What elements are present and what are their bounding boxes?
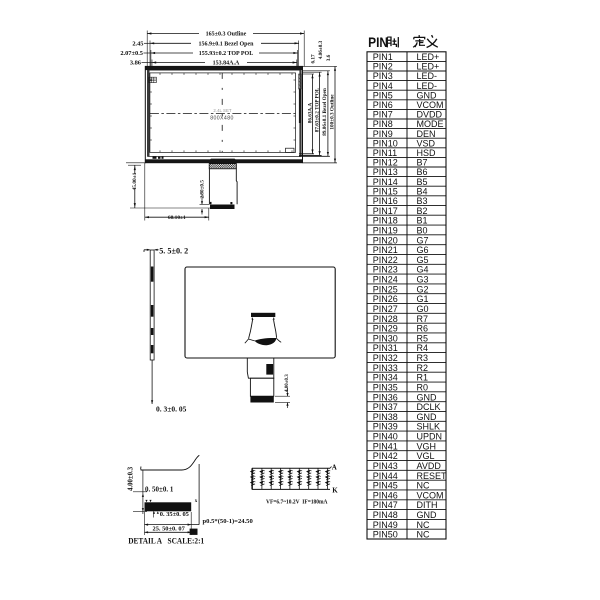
svg-text:PIN50: PIN50 [373,530,398,540]
svg-text:R4: R4 [417,343,429,353]
svg-text:PIN24: PIN24 [373,275,398,285]
svg-text:DVDD: DVDD [417,110,443,120]
svg-text:153.84A.A: 153.84A.A [213,61,240,67]
svg-text:PIN5: PIN5 [373,90,393,100]
svg-text:G2: G2 [417,284,429,294]
svg-text:B1: B1 [417,216,428,226]
svg-text:PIN6: PIN6 [373,100,393,110]
svg-text:R1: R1 [417,373,429,383]
svg-text:B2: B2 [417,206,428,216]
svg-text:PIN43: PIN43 [373,461,398,471]
svg-text:PIN39: PIN39 [373,422,398,432]
svg-text:PIN2: PIN2 [373,62,393,72]
svg-text:PIN31: PIN31 [373,343,398,353]
svg-text:G4: G4 [417,265,429,275]
svg-text:G7: G7 [417,235,429,245]
svg-text:GND: GND [417,392,438,402]
svg-text:R2: R2 [417,363,429,373]
svg-text:PIN30: PIN30 [373,333,398,343]
svg-text:G5: G5 [417,255,429,265]
svg-text:B6: B6 [417,167,428,177]
svg-text:45.00±1: 45.00±1 [132,172,138,190]
svg-text:165±0.3 Outline: 165±0.3 Outline [206,32,247,38]
svg-text:G6: G6 [417,245,429,255]
svg-text:GND: GND [417,510,438,520]
svg-text:PIN40: PIN40 [373,432,398,442]
svg-text:4.00±0.3: 4.00±0.3 [128,466,135,491]
svg-text:B7: B7 [417,158,428,168]
svg-text:2.45: 2.45 [132,40,143,47]
svg-text:3.86: 3.86 [130,60,142,67]
svg-text:PIN45: PIN45 [373,481,398,491]
svg-text:PIN44: PIN44 [373,471,398,481]
svg-text:R3: R3 [417,353,429,363]
svg-text:0. 35±0. 05: 0. 35±0. 05 [160,511,189,518]
svg-text:LED+: LED+ [417,62,440,72]
svg-text:PIN46: PIN46 [373,490,398,500]
svg-text:PIN3: PIN3 [373,71,393,81]
svg-text:PIN22: PIN22 [373,255,398,265]
svg-text:PIN47: PIN47 [373,500,398,510]
svg-text:PIN28: PIN28 [373,314,398,324]
svg-text:DITH: DITH [417,500,438,510]
svg-text:PIN21: PIN21 [373,245,398,255]
svg-text:LED-: LED- [417,81,438,91]
svg-text:800X480: 800X480 [210,116,234,122]
svg-text:PIN29: PIN29 [373,324,398,334]
svg-text:PIN13: PIN13 [373,167,398,177]
svg-text:AVDD: AVDD [417,461,442,471]
svg-text:6.17: 6.17 [311,54,317,63]
svg-text:PIN27: PIN27 [373,304,398,314]
svg-text:LED-: LED- [417,71,438,81]
svg-text:VGH: VGH [417,441,437,451]
svg-text:PIN11: PIN11 [373,148,397,158]
svg-text:VSD: VSD [417,138,436,148]
svg-text:PIN4: PIN4 [373,81,393,91]
svg-text:PIN49: PIN49 [373,520,398,530]
svg-text:PIN48: PIN48 [373,510,398,520]
svg-text:VF=6.7~10.2V IF=180mA: VF=6.7~10.2V IF=180mA [266,498,328,505]
svg-text:PIN18: PIN18 [373,216,398,226]
svg-text:PIN32: PIN32 [373,353,398,363]
svg-text:PIN38: PIN38 [373,412,398,422]
svg-text:PIN15: PIN15 [373,186,398,196]
svg-text:NC: NC [417,520,430,530]
svg-text:DETAIL A SCALE:2:1: DETAIL A SCALE:2:1 [128,537,204,546]
svg-text:0. 3±0. 05: 0. 3±0. 05 [156,405,187,414]
svg-text:89.06±0.1 Bezel Open: 89.06±0.1 Bezel Open [322,88,328,136]
svg-text:25. 50±0. 07: 25. 50±0. 07 [153,526,186,533]
svg-text:DEN: DEN [417,129,436,139]
svg-text:68.10±1: 68.10±1 [168,215,186,221]
svg-text:156.9±0.1 Bezel Open: 156.9±0.1 Bezel Open [199,41,255,47]
svg-text:R7: R7 [417,314,429,324]
svg-text:PIN17: PIN17 [373,206,398,216]
svg-text:PIN23: PIN23 [373,265,398,275]
svg-text:PIN19: PIN19 [373,225,398,235]
svg-text:VCOM: VCOM [417,490,444,500]
svg-text:R5: R5 [417,333,429,343]
svg-text:PIN14: PIN14 [373,177,398,187]
svg-text:86.63A.A: 86.63A.A [307,103,313,124]
svg-text:A: A [332,463,337,471]
svg-text:G3: G3 [417,275,429,285]
svg-text:GND: GND [417,90,438,100]
svg-text:PIN37: PIN37 [373,402,398,412]
svg-text:B4: B4 [417,186,428,196]
svg-text:HSD: HSD [417,148,437,158]
svg-text:RESET: RESET [417,471,448,481]
svg-text:UPDN: UPDN [417,432,443,442]
svg-text:155.93±0.2 TOP POL: 155.93±0.2 TOP POL [199,51,253,57]
svg-text:K: K [332,487,338,495]
svg-text:G1: G1 [417,294,429,304]
svg-text:PIN: PIN [368,34,388,50]
svg-text:PIN25: PIN25 [373,284,398,294]
svg-text:PIN16: PIN16 [373,196,398,206]
svg-text:NC: NC [417,481,430,491]
svg-text:VGL: VGL [417,451,435,461]
svg-text:5. 5±0. 2: 5. 5±0. 2 [159,246,188,255]
svg-text:3.6: 3.6 [326,54,332,61]
svg-text:PIN8: PIN8 [373,119,393,129]
svg-text:2.07±0.5: 2.07±0.5 [120,50,143,57]
svg-text:p0.5*(50-1)=24.50: p0.5*(50-1)=24.50 [203,518,254,525]
svg-text:PIN41: PIN41 [373,441,398,451]
svg-text:100±0.3 Outline: 100±0.3 Outline [329,94,335,130]
svg-text:B3: B3 [417,196,428,206]
svg-text:B5: B5 [417,177,428,187]
svg-text:4.06±0.3: 4.06±0.3 [318,40,324,59]
svg-text:LED+: LED+ [417,52,440,62]
svg-text:PIN36: PIN36 [373,392,398,402]
svg-text:PIN33: PIN33 [373,363,398,373]
svg-text:87.63±0.2 TOP POL: 87.63±0.2 TOP POL [314,87,320,132]
svg-text:PIN35: PIN35 [373,382,398,392]
svg-text:VCOM: VCOM [417,100,444,110]
svg-text:NC: NC [417,530,430,540]
svg-text:PIN42: PIN42 [373,451,398,461]
svg-text:2.4L SET: 2.4L SET [213,108,231,113]
svg-text:R0: R0 [417,382,429,392]
svg-text:G0: G0 [417,304,429,314]
svg-text:4.00±0.3: 4.00±0.3 [285,374,290,392]
svg-text:B0: B0 [417,225,428,235]
svg-text:PIN20: PIN20 [373,235,398,245]
svg-text:DCLK: DCLK [417,402,441,412]
svg-text:PIN7: PIN7 [373,110,393,120]
svg-text:0. 50±0. 1: 0. 50±0. 1 [145,485,174,493]
svg-text:PIN12: PIN12 [373,158,398,168]
svg-text:R6: R6 [417,324,429,334]
svg-text:PIN26: PIN26 [373,294,398,304]
svg-text:PIN1: PIN1 [373,52,393,62]
svg-text:SHLK: SHLK [417,422,441,432]
svg-text:PIN10: PIN10 [373,138,398,148]
svg-text:2.80±0.5: 2.80±0.5 [200,180,206,199]
svg-text:PIN34: PIN34 [373,373,398,383]
svg-text:GND: GND [417,412,438,422]
svg-text:PIN9: PIN9 [373,129,393,139]
svg-text:MODE: MODE [417,119,444,129]
